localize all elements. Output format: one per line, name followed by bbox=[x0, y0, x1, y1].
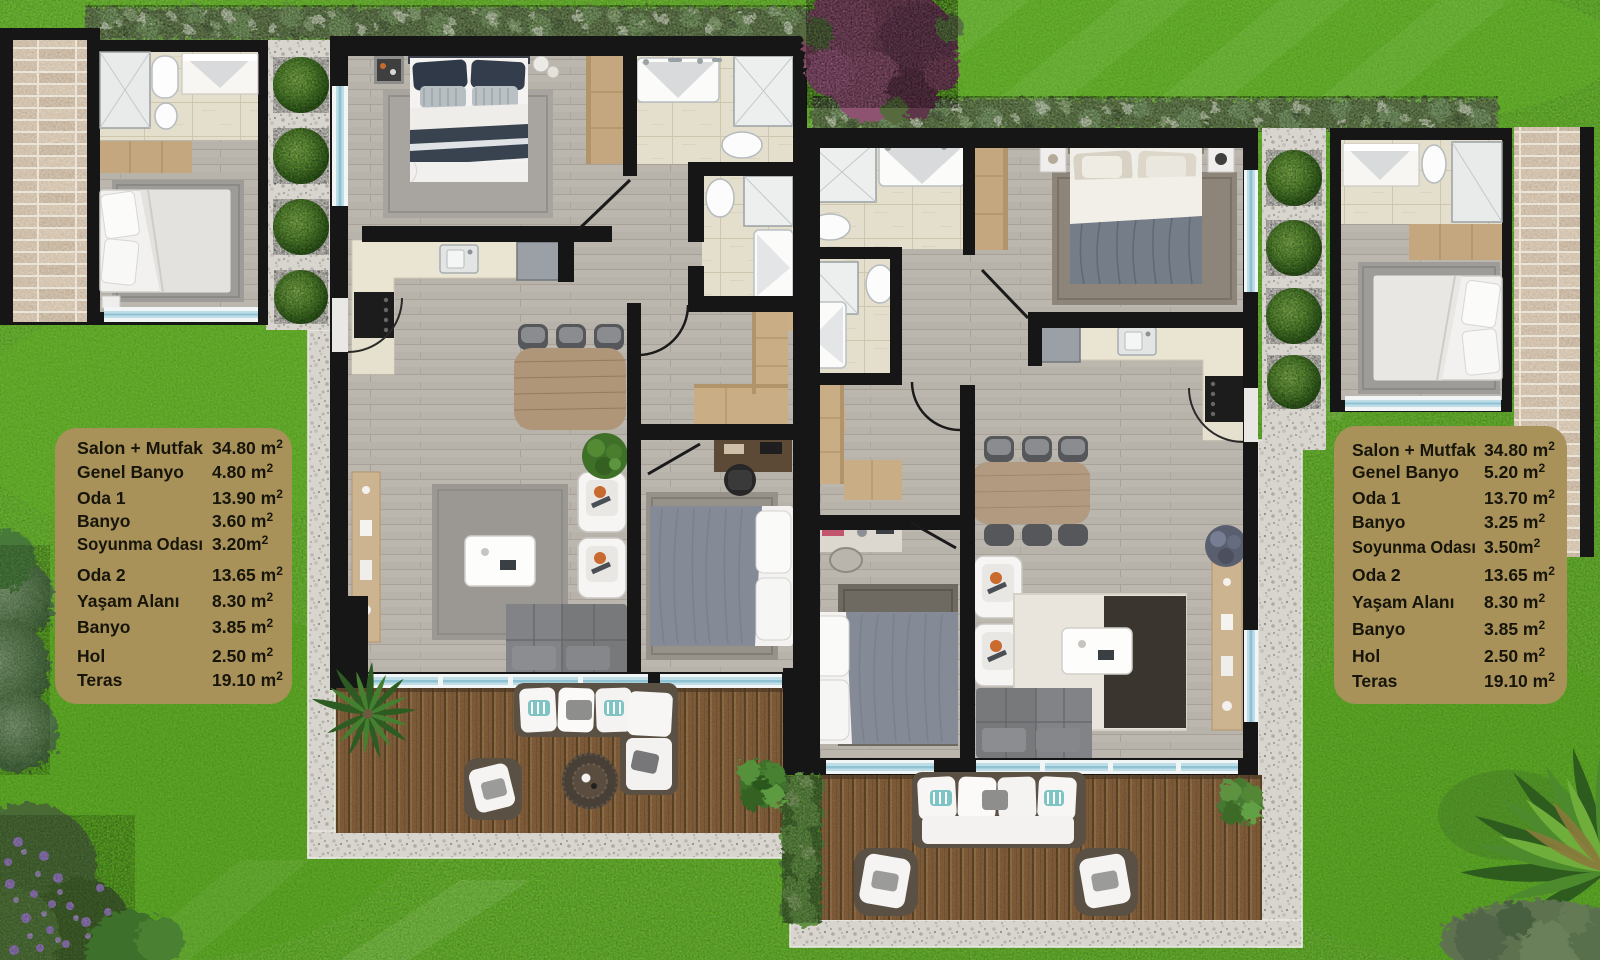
svg-text:Yaşam Alanı: Yaşam Alanı bbox=[77, 591, 179, 611]
svg-text:Teras: Teras bbox=[1352, 671, 1398, 691]
svg-text:19.10 m2: 19.10 m2 bbox=[212, 669, 283, 690]
svg-text:3.25 m2: 3.25 m2 bbox=[1484, 511, 1545, 532]
svg-text:8.30 m2: 8.30 m2 bbox=[212, 590, 273, 611]
svg-text:Oda 1: Oda 1 bbox=[77, 488, 126, 508]
svg-text:34.80 m2: 34.80 m2 bbox=[1484, 439, 1555, 460]
svg-text:Salon + Mutfak: Salon + Mutfak bbox=[77, 438, 203, 458]
svg-text:13.90 m2: 13.90 m2 bbox=[212, 487, 283, 508]
svg-text:13.70 m2: 13.70 m2 bbox=[1484, 487, 1555, 508]
svg-text:13.65 m2: 13.65 m2 bbox=[212, 564, 283, 585]
svg-text:Salon + Mutfak: Salon + Mutfak bbox=[1352, 440, 1476, 460]
svg-text:Genel Banyo: Genel Banyo bbox=[77, 462, 184, 482]
svg-text:3.85 m2: 3.85 m2 bbox=[1484, 618, 1545, 639]
svg-text:34.80 m2: 34.80 m2 bbox=[212, 437, 283, 458]
svg-text:2.50 m2: 2.50 m2 bbox=[212, 645, 273, 666]
svg-text:5.20 m2: 5.20 m2 bbox=[1484, 461, 1545, 482]
svg-text:Genel Banyo: Genel Banyo bbox=[1352, 462, 1459, 482]
svg-text:19.10 m2: 19.10 m2 bbox=[1484, 670, 1555, 691]
svg-text:4.80 m2: 4.80 m2 bbox=[212, 461, 273, 482]
svg-text:Soyunma Odası: Soyunma Odası bbox=[77, 534, 203, 554]
svg-text:Oda 2: Oda 2 bbox=[1352, 565, 1401, 585]
svg-text:Hol: Hol bbox=[1352, 646, 1380, 666]
svg-text:Banyo: Banyo bbox=[1352, 619, 1405, 639]
svg-text:Banyo: Banyo bbox=[77, 617, 130, 637]
svg-text:Teras: Teras bbox=[77, 670, 123, 690]
svg-text:Oda 2: Oda 2 bbox=[77, 565, 126, 585]
svg-text:Hol: Hol bbox=[77, 646, 105, 666]
svg-text:Banyo: Banyo bbox=[77, 511, 130, 531]
svg-text:8.30 m2: 8.30 m2 bbox=[1484, 591, 1545, 612]
svg-text:3.50m2: 3.50m2 bbox=[1484, 536, 1541, 557]
svg-text:Soyunma Odası: Soyunma Odası bbox=[1352, 537, 1476, 557]
svg-text:Banyo: Banyo bbox=[1352, 512, 1405, 532]
svg-text:Oda 1: Oda 1 bbox=[1352, 488, 1401, 508]
svg-text:3.20m2: 3.20m2 bbox=[212, 533, 269, 554]
svg-text:3.85 m2: 3.85 m2 bbox=[212, 616, 273, 637]
svg-text:13.65 m2: 13.65 m2 bbox=[1484, 564, 1555, 585]
svg-text:Yaşam Alanı: Yaşam Alanı bbox=[1352, 592, 1454, 612]
svg-text:2.50 m2: 2.50 m2 bbox=[1484, 645, 1545, 666]
svg-text:3.60 m2: 3.60 m2 bbox=[212, 510, 273, 531]
